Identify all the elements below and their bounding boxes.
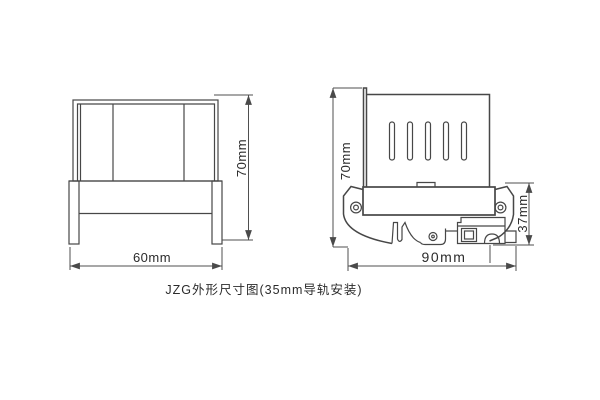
side-terminal-strip (363, 187, 495, 215)
din-rail-clip (392, 218, 516, 245)
jzg-outline-dimension-drawing: 60mm 70mm (0, 0, 600, 400)
vent-slot (408, 122, 413, 160)
vent-slot (390, 122, 395, 160)
side-width-dimension: 90mm (348, 245, 516, 271)
rail-latch-block-inner (465, 231, 474, 239)
screw-hole-left-outer (351, 202, 362, 213)
front-base-right-leg (212, 181, 222, 244)
front-height-label: 70mm (234, 139, 249, 177)
clip-center-tab (421, 229, 446, 245)
screw-hole-right-outer (495, 202, 506, 213)
vent-slot (462, 122, 467, 160)
dimension-drawing-page: 60mm 70mm (0, 0, 600, 400)
side-base-height-label: 37mm (515, 194, 530, 232)
side-view (344, 88, 517, 245)
front-view-dimensions: 60mm 70mm (70, 95, 253, 270)
front-width-dimension: 60mm (70, 247, 222, 270)
vent-slot (426, 122, 431, 160)
drawing-caption: JZG外形尺寸图(35mm导轨安装) (165, 282, 362, 297)
side-width-label: 90mm (422, 249, 467, 265)
vent-slot (444, 122, 449, 160)
rail-foot (485, 234, 500, 244)
front-cover-outline (73, 100, 218, 181)
clip-hole-outer (429, 233, 437, 241)
clip-hole-inner (432, 235, 435, 238)
side-mount-wing-right (490, 187, 514, 242)
screw-hole-right-inner (498, 205, 503, 210)
front-height-dimension: 70mm (214, 95, 253, 240)
front-view (69, 100, 222, 244)
side-cover-vent-slots (390, 122, 467, 160)
front-cover-inner-border (78, 104, 215, 181)
clip-spring (392, 223, 421, 244)
front-base-left-leg (69, 181, 79, 244)
side-cover-front-flange (364, 88, 367, 187)
front-width-label: 60mm (133, 250, 171, 265)
side-height-label: 70mm (338, 142, 353, 180)
side-cover-outline (367, 95, 490, 188)
screw-hole-left-inner (354, 205, 359, 210)
